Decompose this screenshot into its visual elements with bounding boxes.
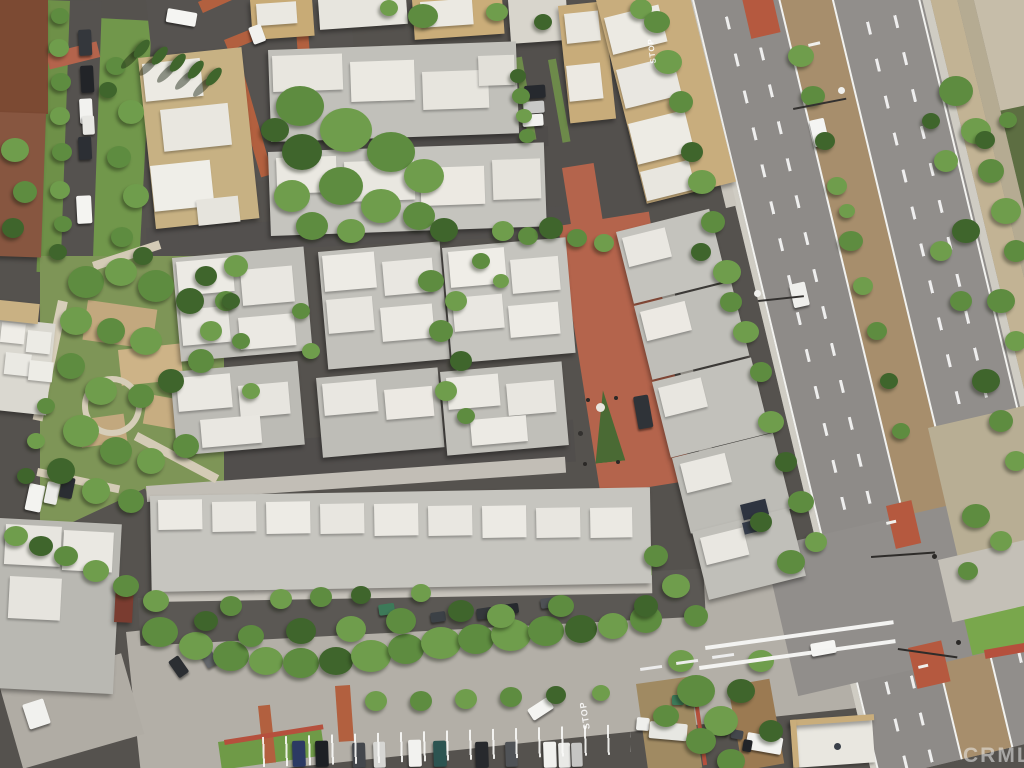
- ground-dot: [834, 743, 841, 750]
- tree: [548, 595, 574, 617]
- tree: [51, 8, 69, 24]
- tree: [118, 489, 144, 513]
- roof-patch: [470, 415, 528, 446]
- roof-patch: [350, 60, 415, 102]
- roof-patch: [240, 265, 295, 305]
- tree: [594, 234, 614, 252]
- tree: [68, 266, 104, 298]
- tree: [450, 351, 472, 371]
- ground-dot: [586, 398, 590, 402]
- tree: [336, 616, 366, 642]
- tree: [194, 611, 218, 631]
- tree: [408, 4, 438, 28]
- ground-dot: [596, 403, 605, 412]
- tree: [200, 321, 222, 341]
- ground-dot: [583, 462, 587, 466]
- tree: [701, 211, 725, 233]
- tree: [320, 108, 372, 152]
- tree: [978, 159, 1004, 183]
- tree: [82, 478, 110, 504]
- tree: [85, 377, 117, 405]
- roof-patch: [196, 196, 240, 226]
- tree: [727, 679, 755, 703]
- tree: [4, 526, 28, 546]
- tree: [435, 381, 457, 401]
- tree: [292, 303, 310, 319]
- tree: [57, 353, 85, 379]
- tree: [176, 288, 204, 314]
- tree: [173, 434, 199, 458]
- tree: [54, 546, 78, 566]
- tree: [653, 705, 679, 727]
- tree: [999, 112, 1017, 128]
- tree: [282, 134, 322, 170]
- roof-patch: [590, 507, 633, 538]
- roof-patch: [326, 296, 375, 334]
- tree: [546, 686, 566, 704]
- tree: [158, 369, 184, 393]
- tree: [1005, 451, 1024, 471]
- tree: [286, 618, 316, 644]
- tree: [274, 180, 310, 212]
- tree: [99, 82, 117, 98]
- tree: [421, 627, 461, 659]
- tree: [592, 685, 610, 701]
- tree: [972, 369, 1000, 393]
- tree: [534, 14, 552, 30]
- tree: [388, 634, 424, 664]
- tree: [733, 321, 759, 343]
- tree: [892, 423, 910, 439]
- tree: [410, 691, 432, 711]
- tree: [867, 322, 887, 340]
- roof-patch: [374, 503, 419, 536]
- tree: [492, 221, 514, 241]
- tree: [644, 545, 668, 567]
- tree: [528, 616, 564, 646]
- tree: [539, 217, 563, 239]
- tree: [827, 177, 847, 195]
- tree: [691, 243, 711, 261]
- tree: [486, 3, 508, 21]
- tree: [49, 39, 69, 57]
- roof-patch: [8, 576, 62, 621]
- tree: [681, 142, 703, 162]
- tree: [118, 100, 144, 124]
- tree: [319, 167, 363, 205]
- tree: [351, 586, 371, 604]
- tree: [567, 229, 587, 247]
- tree: [662, 574, 690, 598]
- roof-patch: [564, 10, 601, 43]
- tree: [179, 632, 213, 660]
- roof-patch: [160, 103, 232, 152]
- roof-patch: [428, 505, 473, 536]
- tree: [519, 129, 535, 143]
- tree: [516, 109, 532, 123]
- tree: [319, 647, 353, 675]
- tree: [130, 327, 162, 355]
- tree: [105, 258, 137, 286]
- tree: [1005, 331, 1024, 351]
- tree: [677, 675, 715, 707]
- tree: [775, 452, 797, 472]
- roof-patch: [256, 1, 297, 26]
- tree: [987, 289, 1015, 313]
- tree: [133, 247, 153, 265]
- tree: [222, 293, 240, 309]
- roof-patch: [26, 330, 52, 354]
- brown-apartment: [0, 0, 48, 114]
- tree: [261, 118, 289, 142]
- tree: [429, 320, 453, 342]
- tree: [500, 687, 522, 707]
- tree: [302, 343, 320, 359]
- roof-patch: [478, 55, 515, 86]
- roof-patch: [212, 501, 257, 532]
- roof-patch: [158, 499, 203, 530]
- roof-patch: [322, 379, 379, 416]
- tree: [493, 274, 509, 288]
- tree: [669, 91, 693, 113]
- tree: [29, 536, 53, 556]
- tree: [990, 531, 1012, 551]
- tree: [128, 384, 154, 408]
- tree: [188, 349, 214, 373]
- tree: [950, 291, 972, 311]
- tree: [952, 219, 980, 243]
- tree: [684, 605, 708, 627]
- tree: [510, 69, 526, 83]
- tree: [249, 647, 283, 675]
- tree: [487, 604, 515, 628]
- roof-patch: [200, 415, 262, 448]
- tree: [49, 244, 67, 260]
- ground-dot: [616, 460, 620, 464]
- tree: [143, 590, 169, 612]
- roof-patch: [266, 501, 311, 534]
- tree: [750, 512, 772, 532]
- tree: [337, 219, 365, 243]
- tree: [448, 600, 474, 622]
- ground-dot: [956, 640, 961, 645]
- ground-dot: [838, 87, 845, 94]
- tree: [455, 689, 477, 709]
- vehicle: [78, 136, 92, 160]
- tree: [975, 131, 995, 149]
- tree: [232, 333, 250, 349]
- tree: [713, 260, 741, 284]
- tree: [100, 437, 132, 465]
- tree: [688, 170, 716, 194]
- tree: [380, 0, 398, 16]
- roof-patch: [566, 62, 604, 101]
- tree: [238, 625, 264, 647]
- tree: [930, 241, 952, 261]
- tree: [418, 270, 444, 292]
- tree: [934, 150, 958, 172]
- tree: [598, 613, 628, 639]
- tree: [880, 373, 898, 389]
- tree: [644, 11, 670, 33]
- tree: [839, 231, 863, 251]
- tree: [142, 617, 178, 647]
- tree: [365, 691, 387, 711]
- tree: [788, 45, 814, 67]
- tree: [123, 184, 149, 208]
- tree: [853, 277, 873, 295]
- tree: [939, 76, 973, 106]
- tree: [565, 615, 597, 643]
- roof-patch: [322, 251, 377, 291]
- tree: [63, 415, 99, 447]
- tree: [224, 255, 248, 277]
- vehicle: [430, 611, 446, 623]
- tree: [750, 362, 772, 382]
- vehicle: [636, 717, 650, 731]
- tree: [50, 107, 70, 125]
- tree: [242, 383, 260, 399]
- tree: [51, 73, 71, 91]
- roof-patch: [0, 322, 26, 344]
- tree: [472, 253, 490, 269]
- tree: [991, 198, 1021, 224]
- tree: [111, 227, 133, 247]
- tree: [27, 433, 45, 449]
- tree: [458, 624, 494, 654]
- roof-patch: [380, 303, 435, 341]
- watermark: CRMLS: [963, 744, 1024, 768]
- tree: [361, 189, 401, 223]
- roof-patch: [320, 503, 365, 534]
- tree: [107, 146, 131, 168]
- tree: [50, 181, 70, 199]
- tree: [512, 88, 530, 104]
- tree: [717, 749, 745, 768]
- vehicle: [80, 65, 94, 93]
- tree: [720, 292, 742, 312]
- tree: [52, 143, 72, 161]
- tree: [296, 212, 328, 240]
- tree: [13, 181, 37, 203]
- tree: [113, 575, 139, 597]
- tree: [47, 458, 75, 484]
- aerial-photo: CRMLS STOPSTOP: [0, 0, 1024, 768]
- tree: [283, 648, 319, 678]
- roof-patch: [28, 360, 54, 382]
- ground-dot: [754, 290, 761, 297]
- roof-patch: [506, 380, 557, 416]
- tree: [634, 595, 658, 617]
- tree: [518, 227, 538, 245]
- tree: [220, 596, 242, 616]
- tree: [83, 560, 109, 582]
- tree: [1004, 240, 1024, 262]
- tree: [922, 113, 940, 129]
- tree: [351, 640, 391, 672]
- roof-patch: [482, 505, 527, 538]
- roof-patch: [510, 256, 561, 294]
- tree: [2, 218, 24, 238]
- tree: [654, 50, 682, 74]
- vehicle: [78, 29, 92, 56]
- tree: [788, 491, 814, 513]
- tree: [17, 468, 35, 484]
- tree: [686, 728, 716, 754]
- ground-dot: [614, 396, 618, 400]
- tree: [54, 216, 72, 232]
- tree: [815, 132, 835, 150]
- tree: [958, 562, 978, 580]
- ground-dot: [578, 431, 583, 436]
- tree: [195, 266, 217, 286]
- tree: [411, 584, 431, 602]
- tree: [989, 410, 1013, 432]
- tree: [839, 204, 855, 218]
- tree: [60, 307, 92, 335]
- tree: [270, 589, 292, 609]
- roof-patch: [384, 386, 434, 420]
- tree: [759, 720, 783, 742]
- roof-patch: [176, 373, 233, 412]
- tree: [457, 408, 475, 424]
- tree: [138, 270, 174, 302]
- park-building: [0, 300, 40, 324]
- roof-patch: [508, 302, 561, 338]
- roof-patch: [492, 158, 541, 200]
- tree: [430, 218, 458, 242]
- tree: [137, 448, 165, 474]
- tree: [37, 398, 55, 414]
- tree: [310, 587, 332, 607]
- vehicle: [76, 195, 92, 224]
- ground-dot: [932, 554, 937, 559]
- vehicle: [82, 115, 95, 135]
- tree: [805, 532, 827, 552]
- tree: [758, 411, 784, 433]
- tree: [97, 318, 125, 344]
- tree: [404, 159, 444, 193]
- tree: [962, 504, 990, 528]
- tree: [445, 291, 467, 311]
- roof-patch: [536, 507, 581, 538]
- tree: [1, 138, 29, 162]
- tree: [386, 608, 416, 634]
- tree: [777, 550, 805, 574]
